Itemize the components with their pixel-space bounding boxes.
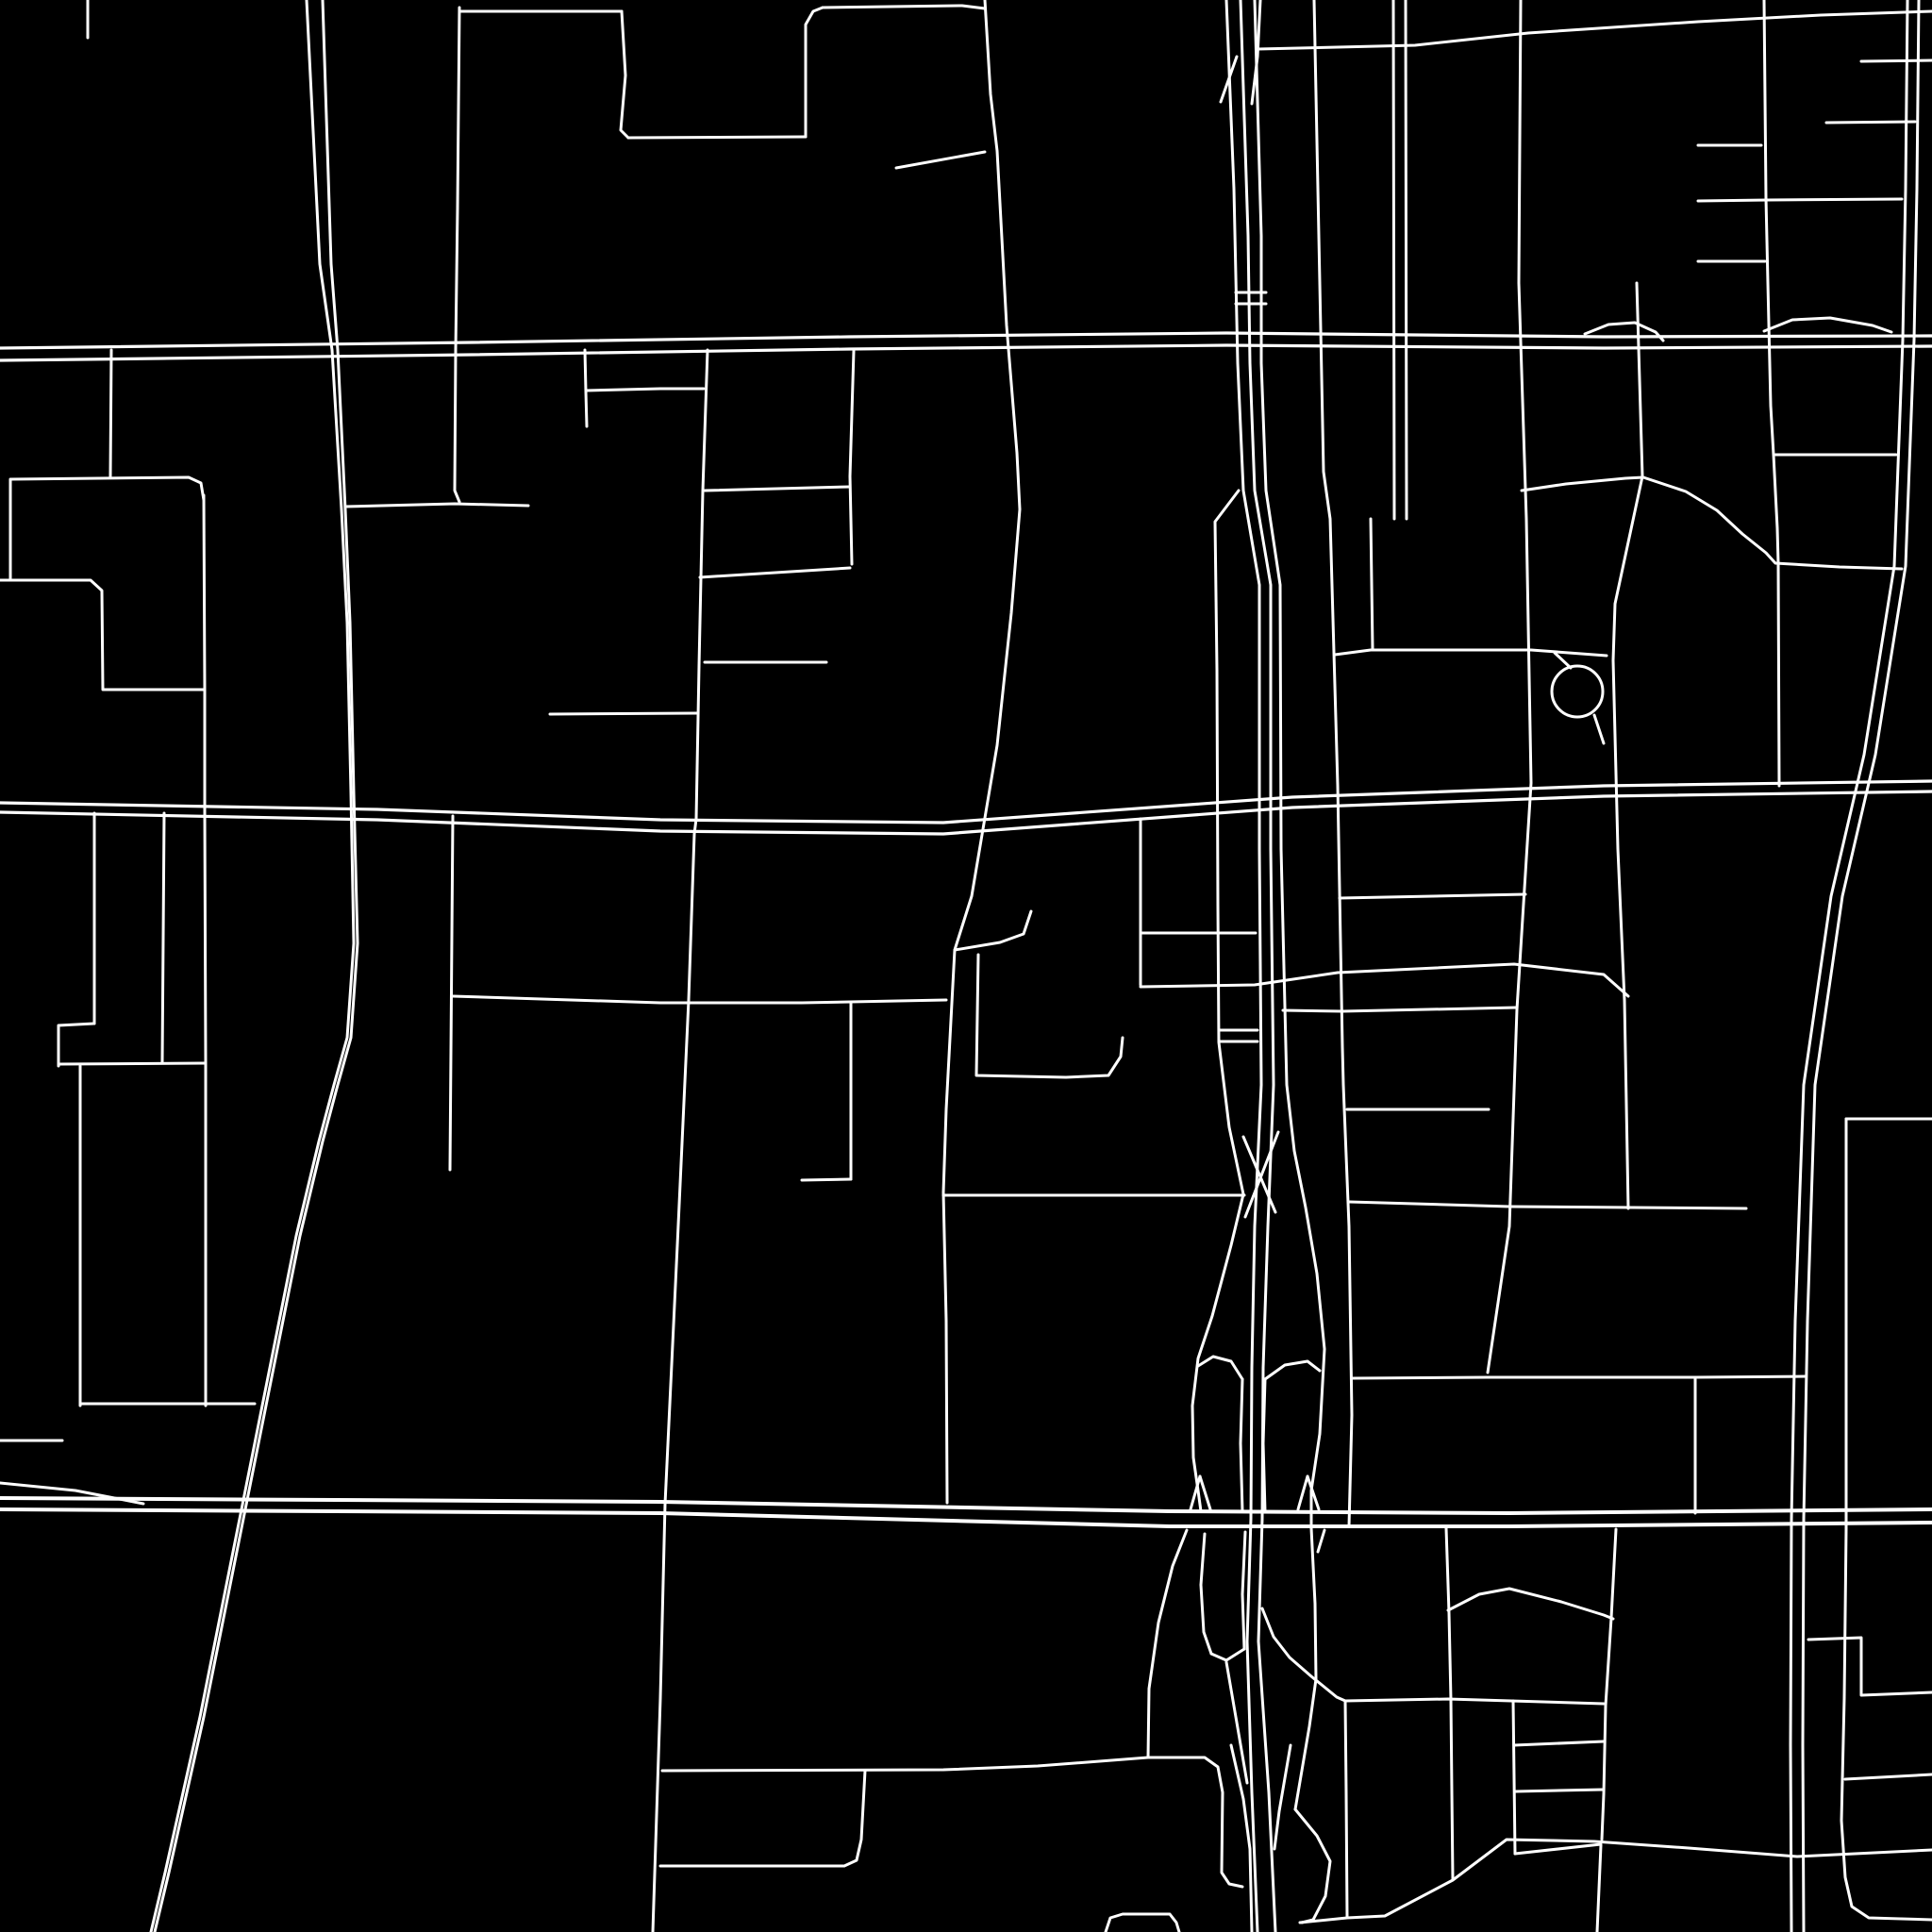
road-street-216-long — [204, 495, 206, 1406]
road-street-118 — [110, 350, 111, 476]
road-teardrop-sw-right — [1242, 1532, 1245, 1649]
road-street-172 — [162, 813, 164, 1063]
road-road-mid-east — [1488, 0, 1531, 1373]
road-curvy-road-east-1 — [1790, 0, 1907, 1932]
cul-de-sac-circle — [1552, 666, 1603, 717]
road-road-west-of-freeway — [943, 0, 1020, 1503]
road-arc-road-1700 — [1448, 1589, 1613, 1619]
road-road-1957 — [1841, 1119, 1932, 1920]
road-street-1273 — [1349, 1202, 1746, 1208]
road-ramp-merge-south — [1274, 1745, 1291, 1849]
road-arterial-h1-south — [0, 345, 1932, 360]
road-street-1886 — [1845, 1774, 1932, 1779]
road-street-1848 — [1514, 1741, 1604, 1745]
road-u-street-bottom — [628, 137, 806, 138]
road-u-street-right — [806, 8, 823, 137]
road-street-1605-v — [1513, 1701, 1515, 1854]
road-step-1738 — [1808, 1638, 1932, 1695]
road-street-1710-v — [1602, 1529, 1616, 1840]
road-street-1453 — [1371, 519, 1373, 649]
street-map[interactable] — [0, 0, 1932, 1932]
street-map-canvas[interactable] — [0, 0, 1932, 1932]
road-street-950-east — [1340, 894, 1525, 898]
road-block-center-bottom — [700, 568, 850, 577]
road-arterial-h2-south — [0, 791, 1932, 834]
road-street-1966 — [1515, 1844, 1601, 1854]
road-street-905 — [850, 351, 854, 564]
road-street-100-jog — [58, 1024, 94, 1066]
road-arterial-h1-north — [0, 333, 1932, 348]
road-teardrop-ne-arc — [1265, 1361, 1320, 1379]
road-street-213 — [1698, 199, 1902, 201]
road-street-1490 — [1406, 0, 1407, 519]
road-ramp-sw — [1148, 1530, 1187, 1757]
road-teardrop-sw-left — [1201, 1534, 1211, 1654]
road-collector-wavy-mid — [1522, 477, 1902, 569]
road-freeway-ramp-west — [1215, 491, 1243, 1194]
road-connector-534 — [345, 504, 528, 507]
road-rail-diagonal-west-1 — [151, 0, 354, 1932]
road-street-1535-v — [1446, 1528, 1453, 1879]
road-arterial-h2-north — [0, 781, 1932, 823]
road-road-1875 — [662, 1757, 1148, 1771]
road-teardrop-tip-left-b — [1200, 1476, 1210, 1509]
road-street-1710-v-south — [1597, 1845, 1601, 1932]
road-teardrop-nw-outer — [1192, 1194, 1243, 1511]
road-collector-wavy-west — [453, 996, 946, 1003]
road-block-notch — [0, 580, 204, 690]
road-collector-1045-east — [1141, 964, 1628, 996]
road-street-top-center — [823, 6, 985, 8]
road-block-bottom-edge — [1106, 1914, 1179, 1932]
road-ramp-se-loop — [1295, 1809, 1330, 1923]
road-street-1477 — [1393, 0, 1394, 519]
road-block-center-top — [705, 487, 850, 491]
road-street-756 — [550, 713, 697, 714]
road-teardrop-nw-arc — [1198, 1357, 1242, 1379]
road-street-1070-east — [1283, 1008, 1517, 1011]
road-street-1426-south — [1345, 1701, 1347, 1917]
road-street-487 — [455, 8, 459, 502]
road-street-620 — [585, 350, 587, 426]
road-block-topleft-outline — [10, 477, 204, 578]
road-ramp-diag-se — [1262, 1608, 1345, 1701]
road-loop-road-sw — [1148, 1757, 1242, 1887]
road-circle-spur-se — [1594, 715, 1604, 743]
road-teardrop-ne-inner — [1263, 1379, 1265, 1511]
road-spur-415 — [586, 389, 704, 391]
road-h1-bypass-arc-2 — [1764, 318, 1891, 332]
road-road-1722 — [1613, 283, 1642, 1208]
road-sloped-street-top — [896, 152, 985, 168]
road-street-480 — [450, 816, 453, 1170]
road-road-center-vertical — [653, 350, 708, 1932]
road-street-1899 — [1516, 1790, 1604, 1791]
road-loop-street — [976, 955, 1123, 1077]
road-rect-west-top — [58, 1063, 206, 1064]
road-road-1877 — [1764, 0, 1779, 786]
road-teardrop-sw-arc — [1211, 1649, 1244, 1660]
road-teardrop-se-edge — [1318, 1530, 1324, 1552]
road-ramp-sw-diag — [1231, 1745, 1252, 1932]
road-road-top-right — [1257, 11, 1932, 49]
road-street-688-east — [1335, 650, 1607, 656]
road-u-street-left — [621, 11, 628, 138]
road-street-1460 — [1353, 1376, 1806, 1378]
road-corner-road-sw — [660, 1771, 865, 1866]
road-h3-west-wedge — [0, 1483, 143, 1504]
road-freeway-main-3 — [1255, 0, 1324, 1809]
road-street-1250 — [802, 1179, 851, 1180]
road-street-1801 — [1345, 1699, 1604, 1704]
road-teardrop-tip-right-a — [1298, 1476, 1307, 1509]
road-road-bottom-curvy — [1300, 1840, 1932, 1923]
road-teardrop-nw-inner — [1241, 1379, 1242, 1511]
road-rail-diagonal-west-2 — [155, 0, 358, 1932]
road-circle-spur-nw — [1555, 653, 1571, 668]
road-street-130 — [1826, 122, 1915, 123]
road-street-65 — [1861, 60, 1932, 61]
